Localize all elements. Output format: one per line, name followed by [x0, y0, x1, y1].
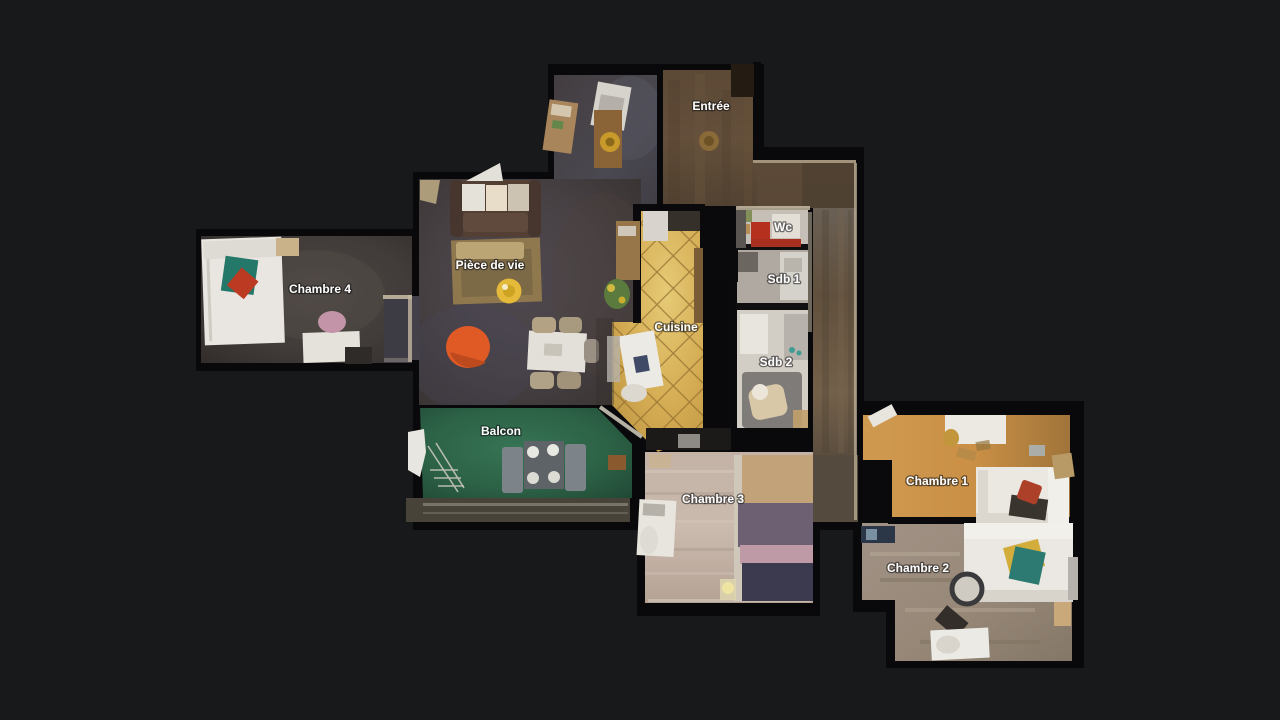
svg-text:Sdb 2: Sdb 2: [760, 355, 793, 369]
svg-text:Cuisine: Cuisine: [654, 320, 698, 334]
svg-text:Chambre 1: Chambre 1: [906, 474, 968, 488]
svg-text:Wc: Wc: [774, 220, 792, 234]
svg-text:Sdb 1: Sdb 1: [768, 272, 801, 286]
svg-text:Pièce de vie: Pièce de vie: [456, 258, 525, 272]
svg-text:Chambre 4: Chambre 4: [289, 282, 351, 296]
svg-text:Balcon: Balcon: [481, 424, 521, 438]
svg-text:Entrée: Entrée: [692, 99, 730, 113]
svg-text:Chambre 3: Chambre 3: [682, 492, 744, 506]
svg-text:Chambre 2: Chambre 2: [887, 561, 949, 575]
